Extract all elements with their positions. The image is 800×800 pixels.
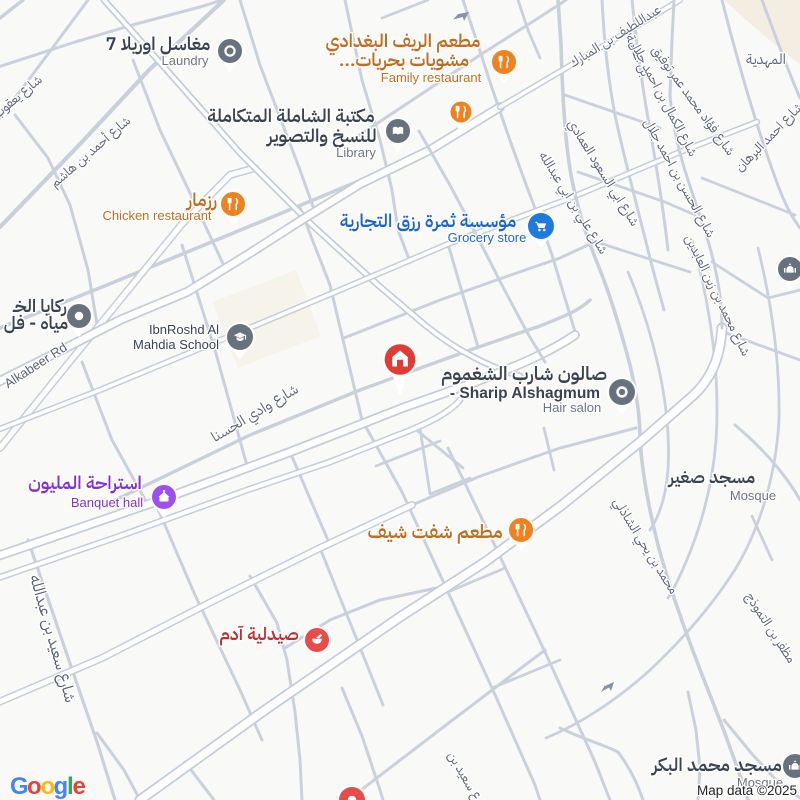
- svg-text:Library: Library: [336, 145, 376, 160]
- svg-text:Map data ©2025: Map data ©2025: [697, 783, 797, 798]
- svg-text:Laundry: Laundry: [162, 53, 209, 68]
- svg-text:Hair salon: Hair salon: [543, 400, 602, 415]
- svg-text:o: o: [27, 773, 42, 800]
- svg-text:G: G: [10, 773, 29, 800]
- svg-text:IbnRoshd Al: IbnRoshd Al: [149, 322, 219, 337]
- svg-text:Family restaurant: Family restaurant: [381, 70, 482, 85]
- svg-text:e: e: [73, 773, 86, 800]
- svg-text:Chicken restaurant: Chicken restaurant: [102, 208, 211, 223]
- svg-text:Grocery store: Grocery store: [448, 230, 527, 245]
- svg-text:Mosque: Mosque: [730, 488, 776, 503]
- svg-text:Banquet hall: Banquet hall: [71, 495, 143, 510]
- svg-text:Mahdia School: Mahdia School: [133, 337, 219, 352]
- svg-text:g: g: [54, 773, 69, 800]
